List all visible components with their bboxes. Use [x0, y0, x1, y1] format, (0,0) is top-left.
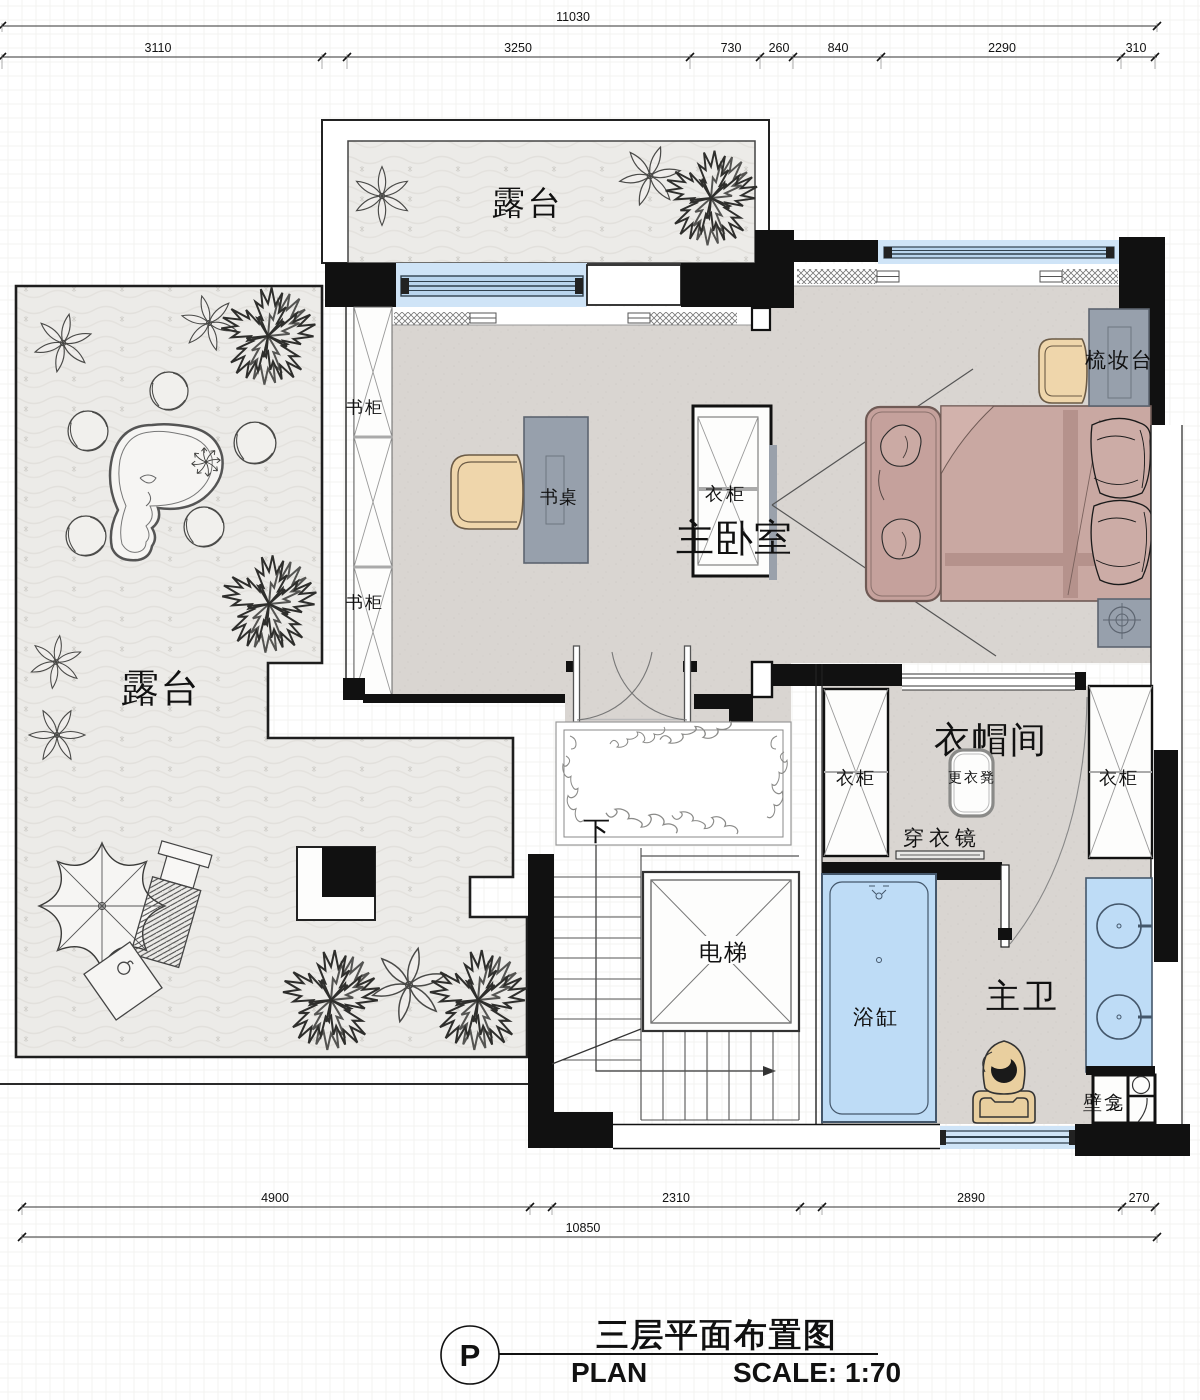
svg-text:270: 270 — [1129, 1191, 1150, 1205]
svg-text:4900: 4900 — [261, 1191, 289, 1205]
svg-text:310: 310 — [1126, 41, 1147, 55]
svg-text:SCALE: 1:70: SCALE: 1:70 — [733, 1357, 901, 1388]
svg-text:3110: 3110 — [145, 41, 172, 55]
svg-text:730: 730 — [721, 41, 742, 55]
svg-text:10850: 10850 — [566, 1221, 601, 1235]
svg-text:840: 840 — [828, 41, 849, 55]
svg-text:PLAN: PLAN — [571, 1357, 647, 1388]
svg-text:P: P — [460, 1338, 481, 1373]
svg-text:2290: 2290 — [988, 41, 1016, 55]
svg-text:11030: 11030 — [556, 10, 590, 24]
svg-text:2890: 2890 — [957, 1191, 985, 1205]
svg-text:260: 260 — [769, 41, 790, 55]
svg-text:3250: 3250 — [504, 41, 532, 55]
svg-text:2310: 2310 — [662, 1191, 690, 1205]
